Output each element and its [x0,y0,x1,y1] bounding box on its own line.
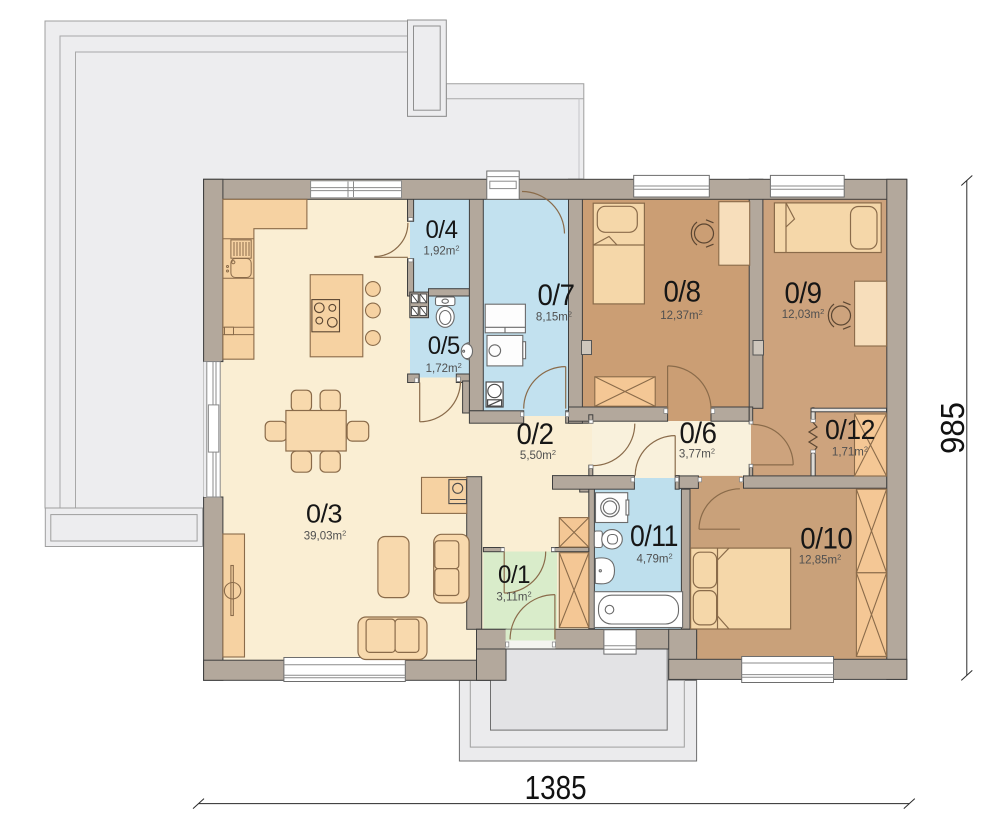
svg-text:0/11: 0/11 [630,520,678,553]
svg-text:0/9: 0/9 [785,277,822,310]
svg-text:12,03m2: 12,03m2 [782,307,825,321]
svg-text:0/1: 0/1 [498,561,530,589]
svg-text:985: 985 [934,402,971,454]
svg-text:0/8: 0/8 [664,276,701,309]
svg-text:1385: 1385 [525,769,587,806]
svg-text:1,92m2: 1,92m2 [423,243,459,257]
svg-text:3,11m2: 3,11m2 [496,590,531,604]
svg-text:0/2: 0/2 [517,418,554,451]
svg-text:0/6: 0/6 [680,417,717,450]
svg-text:0/7: 0/7 [538,279,575,312]
svg-text:1,71m2: 1,71m2 [832,445,868,459]
svg-text:12,85m2: 12,85m2 [799,553,842,567]
svg-text:5,50m2: 5,50m2 [520,448,556,462]
svg-text:4,79m2: 4,79m2 [637,552,673,566]
svg-text:3,77m2: 3,77m2 [679,447,715,461]
svg-text:0/5: 0/5 [428,332,460,360]
svg-text:12,37m2: 12,37m2 [660,308,703,322]
svg-text:1,72m2: 1,72m2 [426,361,462,375]
svg-text:0/3: 0/3 [306,499,342,529]
svg-text:39,03m2: 39,03m2 [304,529,347,543]
svg-text:0/10: 0/10 [800,523,852,556]
svg-text:8,15m2: 8,15m2 [536,310,572,324]
svg-text:0/4: 0/4 [426,216,459,244]
svg-text:0/12: 0/12 [825,414,875,445]
